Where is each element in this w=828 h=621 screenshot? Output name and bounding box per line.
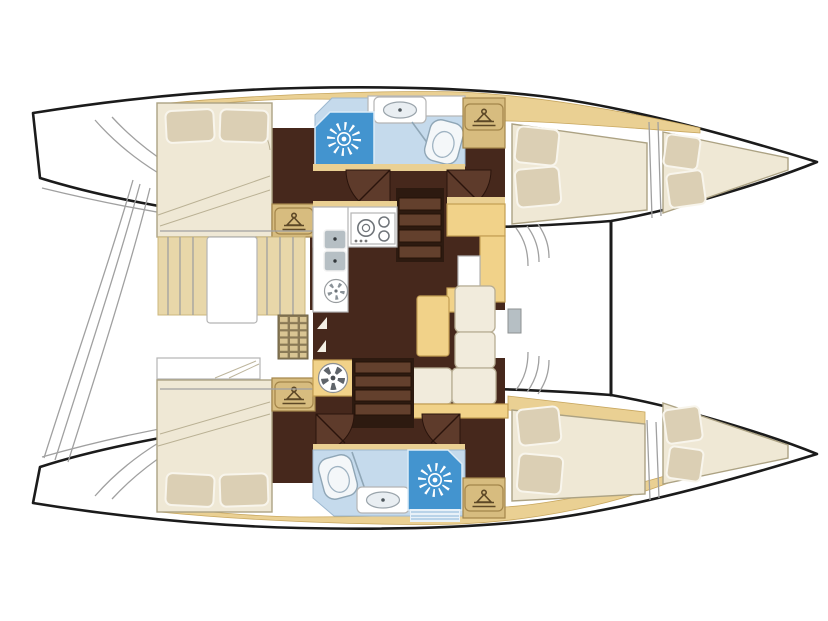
pillow <box>165 109 215 143</box>
pillow <box>514 126 560 166</box>
nav-seat <box>458 256 480 286</box>
louvered-locker <box>278 315 308 359</box>
mast-step <box>508 309 521 333</box>
wardrobe-hanger-icon <box>465 485 503 511</box>
sofa-cushion <box>452 368 496 404</box>
port-hull-wardrobe <box>463 98 505 148</box>
chart-table-top <box>447 204 505 236</box>
starboard-head <box>313 444 465 522</box>
pillow <box>516 406 562 446</box>
pillow <box>219 473 268 507</box>
locker-panel <box>207 237 257 323</box>
round-sink-icon <box>325 280 348 303</box>
wardrobe-hanger-icon <box>275 382 313 408</box>
pillow <box>666 170 706 209</box>
bench-seat <box>157 358 260 379</box>
coffee-table <box>417 296 449 356</box>
washbasin-icon <box>374 97 426 123</box>
pillow <box>165 473 215 507</box>
port-companionway-stairs <box>396 188 444 262</box>
locker-curtain <box>158 237 208 315</box>
pillow <box>663 406 703 445</box>
starboard-hull-wardrobe <box>463 478 505 518</box>
vent-box <box>313 360 353 396</box>
pillow <box>219 109 268 143</box>
foredeck <box>508 224 549 394</box>
pillow <box>666 446 704 482</box>
floor-plan-canvas <box>0 0 828 621</box>
sofa-cushion <box>455 286 495 332</box>
pillow <box>514 166 561 208</box>
pillow <box>516 453 563 495</box>
locker-curtain <box>257 237 305 315</box>
wardrobe-hanger-icon <box>275 208 313 234</box>
washbasin-icon <box>357 487 409 513</box>
vent-fan-icon <box>319 364 348 393</box>
wardrobe-hanger-icon <box>465 104 503 130</box>
stove-knobs <box>355 240 368 243</box>
floor-plan-page <box>0 0 828 621</box>
port-head <box>313 96 466 171</box>
pillow <box>663 134 701 170</box>
sofa-cushion <box>455 332 495 368</box>
starboard-companionway-stairs <box>352 358 414 428</box>
